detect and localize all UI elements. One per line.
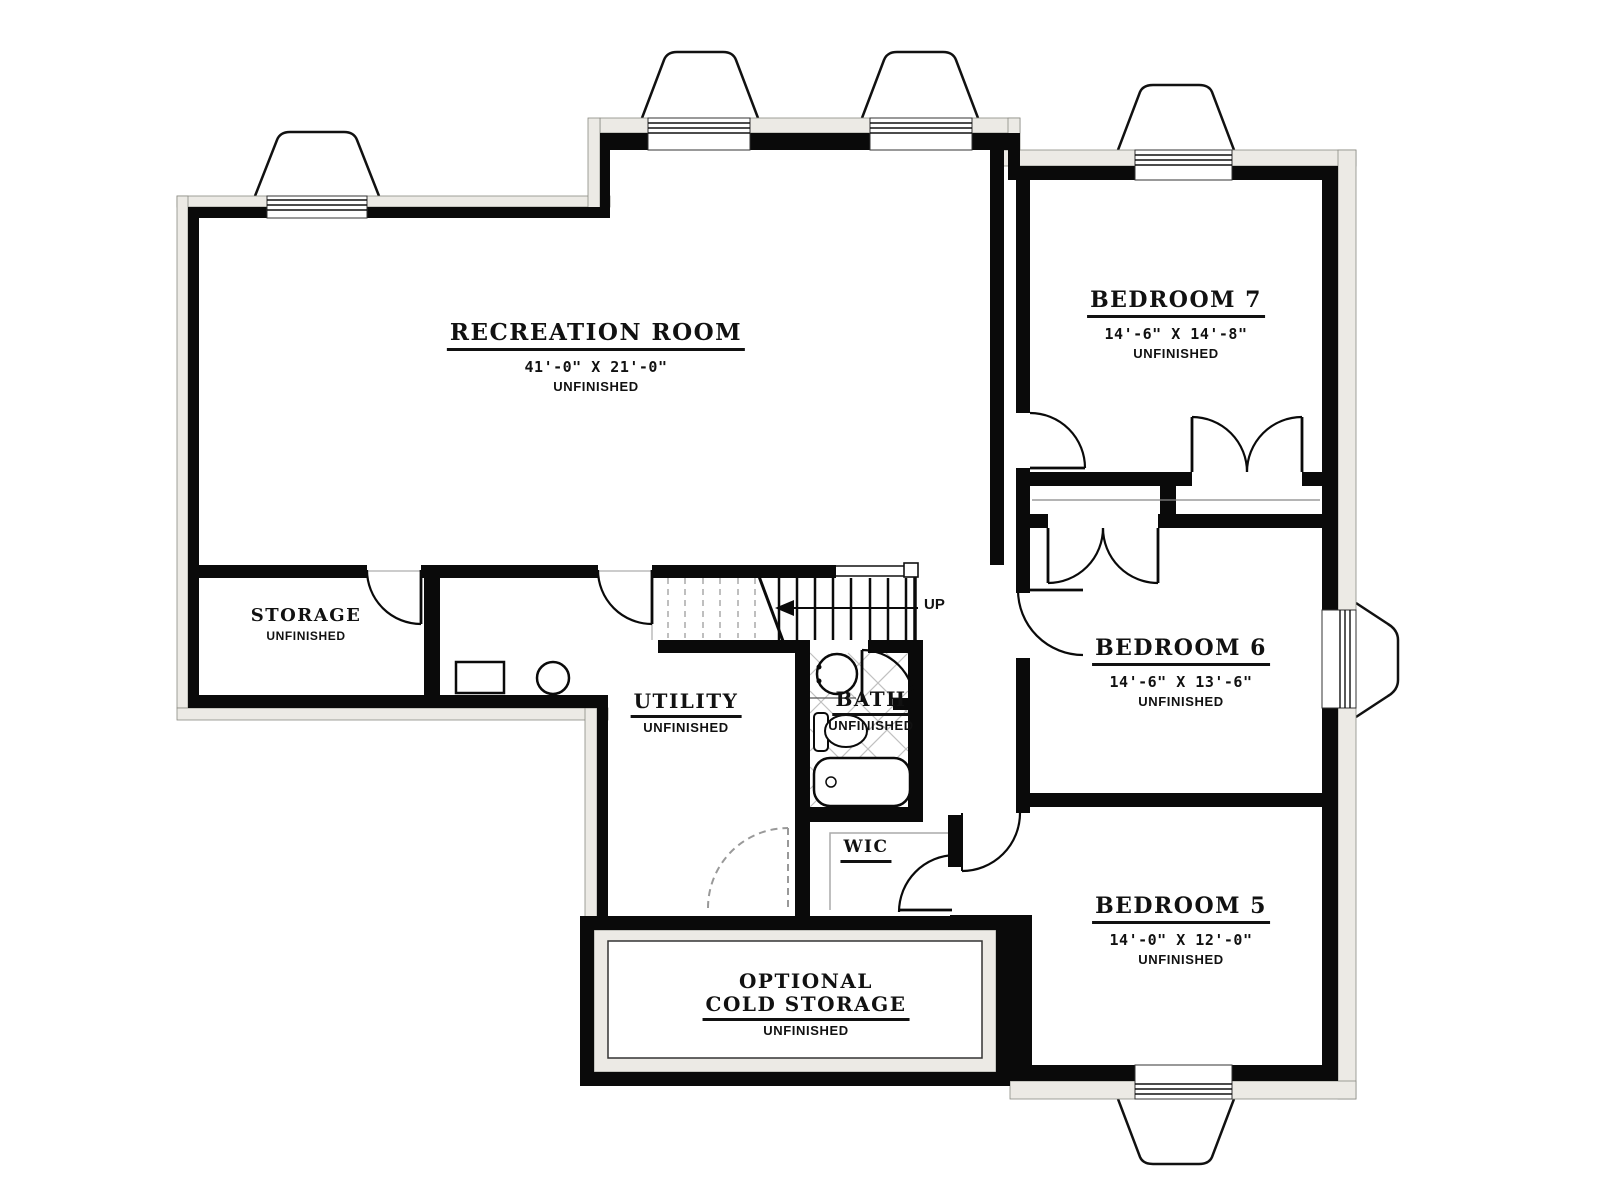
room-label-recreation: RECREATION ROOM 41'-0" X 21'-0" UNFINISH… xyxy=(447,320,745,395)
room-label-bedroom7: BEDROOM 7 14'-6" X 14'-8" UNFINISHED xyxy=(1087,288,1265,361)
room-label-bedroom5: BEDROOM 5 14'-0" X 12'-0" UNFINISHED xyxy=(1092,894,1270,967)
room-status: UNFINISHED xyxy=(1087,347,1265,362)
room-title: BATH xyxy=(832,688,909,716)
room-label-cold-storage: OPTIONAL COLD STORAGE UNFINISHED xyxy=(703,970,910,1039)
stairs-up-label: UP xyxy=(924,596,945,613)
room-title: STORAGE xyxy=(251,606,362,627)
room-status: UNFINISHED xyxy=(447,380,745,395)
room-status: UNFINISHED xyxy=(251,630,362,644)
bedroom5-door-icon xyxy=(962,813,1020,871)
room-title: RECREATION ROOM xyxy=(447,320,745,351)
room-dims: 14'-0" X 12'-0" xyxy=(1092,932,1270,949)
room-status: UNFINISHED xyxy=(828,719,913,734)
water-heater-icon xyxy=(537,662,569,694)
room-label-bedroom6: BEDROOM 6 14'-6" X 13'-6" UNFINISHED xyxy=(1092,636,1270,709)
wic-door-icon xyxy=(899,855,955,912)
room-label-utility: UTILITY UNFINISHED xyxy=(631,690,742,736)
bedroom7-closet-doors-icon xyxy=(1192,417,1302,472)
room-title: BEDROOM 7 xyxy=(1087,288,1265,318)
room-dims: 41'-0" X 21'-0" xyxy=(447,359,745,376)
utility-door-icon xyxy=(598,570,652,624)
cold-storage-future-door-icon xyxy=(708,828,788,908)
bathtub-icon xyxy=(814,758,910,806)
room-title: WIC xyxy=(840,838,891,863)
room-title: UTILITY xyxy=(631,690,742,718)
bedroom7-door-icon xyxy=(1030,413,1085,468)
room-title: BEDROOM 5 xyxy=(1092,894,1270,924)
room-label-bath: BATH UNFINISHED xyxy=(828,688,913,734)
room-status: UNFINISHED xyxy=(703,1024,910,1039)
room-status: UNFINISHED xyxy=(1092,953,1270,968)
room-status: UNFINISHED xyxy=(1092,695,1270,710)
bedroom6-door-icon xyxy=(1018,590,1083,655)
bedroom6-closet-doors-icon xyxy=(1048,528,1158,583)
furnace-icon xyxy=(456,662,504,693)
room-status: UNFINISHED xyxy=(631,721,742,736)
room-title-line2: COLD STORAGE xyxy=(703,993,910,1021)
room-label-wic: WIC xyxy=(840,838,891,863)
floor-plan: RECREATION ROOM 41'-0" X 21'-0" UNFINISH… xyxy=(0,0,1600,1200)
room-label-storage: STORAGE UNFINISHED xyxy=(251,606,362,643)
room-dims: 14'-6" X 13'-6" xyxy=(1092,674,1270,691)
stair-railing xyxy=(836,563,918,577)
room-title-line1: OPTIONAL xyxy=(739,970,873,993)
storage-door-icon xyxy=(367,570,421,624)
room-dims: 14'-6" X 14'-8" xyxy=(1087,326,1265,343)
room-title: BEDROOM 6 xyxy=(1092,636,1270,666)
